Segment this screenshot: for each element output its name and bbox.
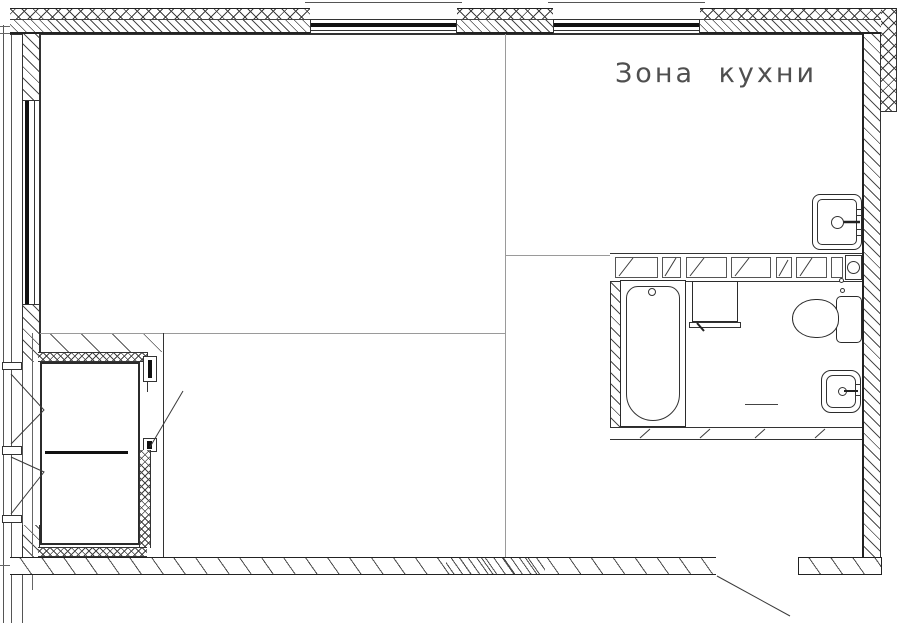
block — [686, 257, 727, 278]
window-sill-line — [305, 2, 462, 3]
balcony-edge-line — [11, 25, 12, 623]
wall-left-inner-face — [40, 34, 41, 362]
pipe-dot — [839, 278, 844, 283]
zone-divider-vertical — [505, 34, 506, 557]
closet-door-hinge — [148, 360, 152, 378]
wall-top-inner — [10, 20, 310, 34]
wall-left-upper — [22, 34, 40, 100]
wall-top-pier-inner — [457, 20, 553, 34]
balcony-door-jamb — [2, 446, 22, 455]
block — [831, 257, 843, 278]
balcony-edge-line — [3, 25, 4, 623]
bathroom-wall-bottom — [610, 427, 862, 440]
wall-right — [862, 34, 881, 557]
closet-wall-right-face — [163, 333, 164, 557]
closet-shelf-line — [45, 451, 128, 454]
block — [796, 257, 827, 278]
toilet-icon — [792, 299, 839, 338]
window-top-1 — [310, 19, 457, 34]
zone-divider-kitchen — [505, 255, 610, 256]
wall-top-pier-outer — [457, 8, 553, 20]
closet-wall-hatch-band — [38, 334, 163, 352]
block — [776, 257, 792, 278]
balcony-door-jamb — [2, 362, 22, 370]
kitchen-zone-label: Зона кухни — [615, 58, 817, 89]
washing-machine-icon — [692, 281, 738, 322]
block — [731, 257, 771, 278]
bathtub-drain — [648, 288, 656, 296]
wall-top-outer — [10, 8, 310, 20]
wall-bottom-right — [798, 557, 882, 575]
wall-top-inner-face — [10, 34, 881, 35]
washing-machine-front — [689, 322, 741, 328]
kitchen-sink-knob — [856, 229, 862, 236]
wall-right-outer-strip — [881, 8, 897, 112]
leader-line — [717, 576, 790, 616]
wall-top-right-outer — [700, 8, 896, 20]
washbasin-faucet — [838, 387, 847, 396]
pipe-dot — [840, 288, 845, 293]
block — [662, 257, 681, 278]
toilet-tank — [836, 296, 862, 343]
closet-wall-bottom — [38, 547, 147, 557]
kitchen-sink-faucet — [831, 216, 844, 229]
wall-bottom-dense-section — [446, 558, 545, 574]
wall-top-right-inner — [700, 20, 896, 34]
window-left — [22, 100, 40, 305]
floor-plan: Зона кухни — [0, 0, 900, 623]
kitchen-sink-knob — [856, 209, 862, 216]
bathroom-floor-mark — [745, 404, 778, 405]
washbasin-wall-plate — [855, 384, 861, 396]
closet-door-hinge — [147, 441, 152, 449]
window-sill-line — [548, 2, 705, 3]
wall-face-line — [32, 333, 33, 590]
bathtub-basin — [626, 286, 680, 421]
closet-wall-top — [38, 352, 147, 362]
block — [615, 257, 658, 278]
pipe-riser-icon — [847, 261, 860, 274]
window-top-2 — [553, 19, 700, 34]
bathroom-wall-top — [610, 253, 862, 282]
balcony-door-jamb — [2, 515, 22, 523]
wall-bottom — [10, 557, 716, 575]
closet-wall-right — [139, 450, 151, 548]
